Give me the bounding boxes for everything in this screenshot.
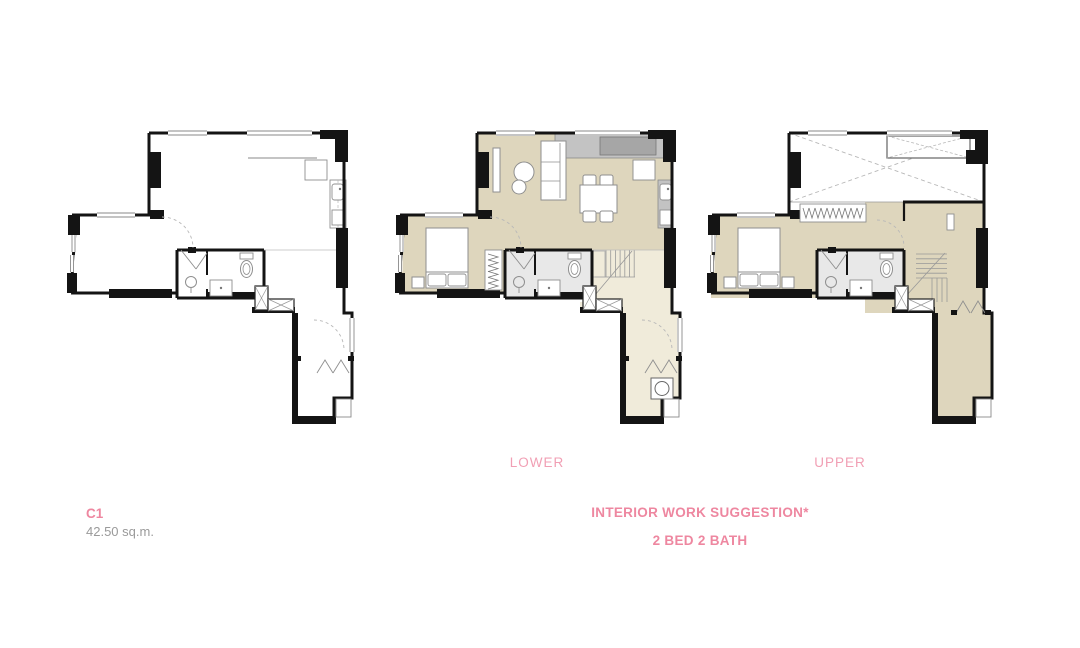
upper-floor-label: UPPER (704, 455, 976, 470)
unit-area: 42.50 sq.m. (86, 524, 154, 540)
lower-floor-label: LOWER (392, 455, 682, 470)
bed-bath-caption: 2 BED 2 BATH (540, 533, 860, 548)
interior-work-caption: INTERIOR WORK SUGGESTION* (540, 505, 860, 520)
floorplan-upper (704, 122, 1004, 434)
unit-code: C1 (86, 506, 154, 523)
floorplan-lower (392, 122, 692, 434)
unit-info: C1 42.50 sq.m. (86, 506, 154, 540)
floorplan-sheet: LOWER UPPER INTERIOR WORK SUGGESTION* 2 … (0, 0, 1080, 648)
floorplan-bare-shell (64, 122, 364, 434)
